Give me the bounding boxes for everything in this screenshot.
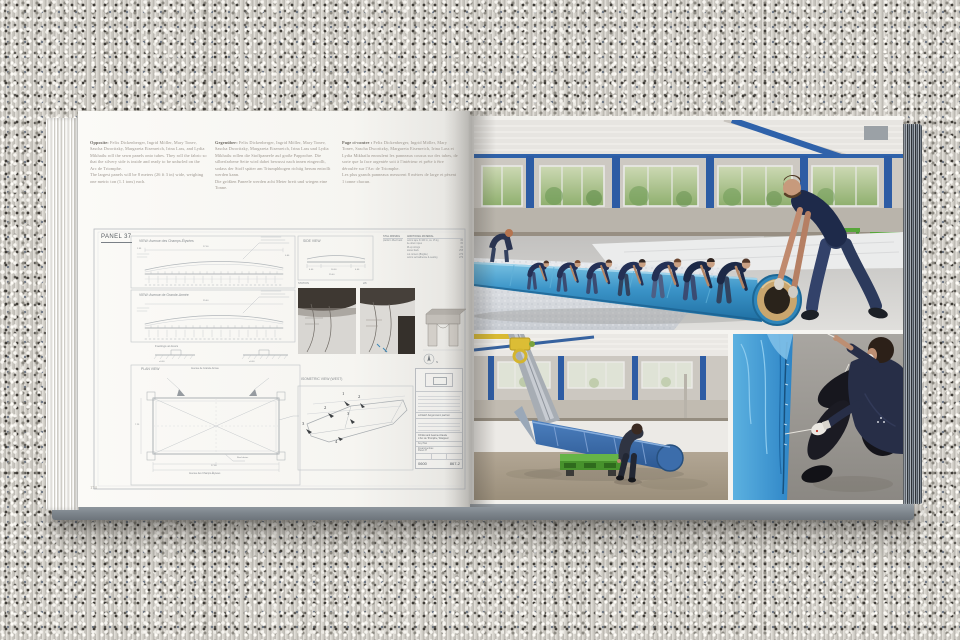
- photo-seamstress-closeup: [733, 334, 903, 500]
- dim-label: 16.00: [331, 269, 336, 272]
- level-label: ±0.00: [159, 361, 164, 364]
- dim-label: 25.40: [203, 300, 208, 303]
- roof-drains-label: Roof drains: [237, 457, 248, 460]
- title-block-key-diagram: [424, 354, 434, 364]
- caption-body: Felix Dickenberger, Ingrid Möller, Mary …: [90, 140, 207, 184]
- dim-label: 27.00: [211, 465, 216, 468]
- level-label: ±0.00: [249, 361, 254, 364]
- technical-drawing-sheet: PANEL 37 VIEW: Avenue des Champs-Élysées…: [93, 228, 466, 490]
- scale-cells: [416, 453, 462, 459]
- caption-lead: Opposite:: [90, 140, 109, 145]
- right-page-stack-fore-edge: [903, 124, 922, 504]
- revision-table: [416, 391, 462, 412]
- book-right-page: [470, 116, 903, 504]
- drawing-number: 0600 867-2: [416, 459, 462, 468]
- panel-number-label: PANEL 37: [101, 234, 132, 243]
- materials-col2-header: ADDITIONAL MATERIAL: [407, 235, 463, 239]
- iso-number: 3: [302, 421, 304, 426]
- isometric-view-label: ISOMETRIC VIEW (WEST): [301, 377, 342, 381]
- materials-row: velcro self-adhesive & sealing279: [407, 257, 463, 260]
- caption-body: Felix Dickenberger, Ingrid Möller, Mary …: [215, 140, 330, 190]
- iso-number: 1: [342, 391, 344, 396]
- footings-details: [154, 350, 288, 359]
- project-client-block: Christo and Jeanne-Claude L'Arc de Triom…: [416, 432, 462, 441]
- iso-number: 2: [358, 394, 360, 399]
- side-view-label: SIDE VIEW: [303, 239, 321, 243]
- photo-of-open-book-on-tweed-fabric: Opposite: Felix Dickenberger, Ingrid Möl…: [0, 0, 960, 640]
- isometric-view-frame: [298, 386, 413, 470]
- title-block: schlaich bergermann partner Christo and …: [415, 368, 463, 469]
- key-plan-box: [416, 369, 462, 391]
- left-page-stack-fore-edge: [46, 118, 79, 510]
- north-arrow-icon: N: [436, 355, 466, 368]
- arc-de-triomphe-sketch: [423, 309, 466, 350]
- drawing-title-block: Zusammenbau Panel 37: [416, 446, 462, 453]
- iso-number: 2: [324, 405, 326, 410]
- station-label: STATION: [298, 282, 309, 285]
- page-number: 174: [90, 485, 97, 490]
- drawing-linework: [93, 228, 466, 490]
- dim-label: 25.40: [329, 274, 334, 277]
- caption-body: Felix Dickenberger, Ingrid Möller, Mary …: [342, 140, 458, 184]
- iso-number: 4: [335, 439, 337, 444]
- elevation-champs-elysees: [131, 236, 295, 288]
- plan-top-street-label: Avenue de Grande-Armée: [191, 368, 219, 371]
- plan-bottom-street-label: Avenue des Champs-Élysées: [189, 473, 220, 476]
- dim-label: 4.00: [309, 269, 313, 272]
- notes-block: [416, 418, 462, 432]
- iso-number: 3: [347, 411, 349, 416]
- materials-table: STILL MISSING platform lifted back ADDIT…: [383, 235, 463, 261]
- footings-label: Footings at doors: [155, 345, 178, 349]
- caption-lead: Page ci-contre :: [342, 140, 372, 145]
- materials-col1-row: platform lifted back: [383, 240, 403, 242]
- dim-label: 0.60: [285, 255, 289, 258]
- sheet-scale-label: 2/6: [363, 282, 367, 285]
- photo-roll-on-crane-sling: [474, 334, 728, 500]
- photo-workers-rolling-panel: [474, 120, 903, 330]
- caption-german: Gegenüber: Felix Dickenberger, Ingrid Mö…: [215, 140, 332, 192]
- dim-label: 7.25: [135, 424, 139, 427]
- caption-lead: Gegenüber:: [215, 140, 238, 145]
- dim-label: 4.00: [355, 269, 359, 272]
- elevation-grande-armee: [131, 290, 295, 342]
- blue-fabric-panel: [733, 334, 793, 500]
- caption-english: Opposite: Felix Dickenberger, Ingrid Möl…: [90, 140, 207, 185]
- view-grande-label: VIEW: Avenue de Grande-Armée: [139, 293, 189, 297]
- book-left-page: Opposite: Felix Dickenberger, Ingrid Möl…: [78, 111, 470, 507]
- dim-label: 27.00: [203, 246, 208, 249]
- view-champs-label: VIEW: Avenue des Champs-Élysées: [139, 239, 194, 243]
- station-reference-photos: [298, 288, 415, 354]
- dim-label: 2.55: [137, 248, 141, 251]
- plan-view-label: PLAN VIEW: [141, 367, 159, 371]
- materials-col1-header: STILL MISSING: [383, 235, 403, 239]
- caption-french: Page ci-contre : Felix Dickenberger, Ing…: [342, 140, 459, 185]
